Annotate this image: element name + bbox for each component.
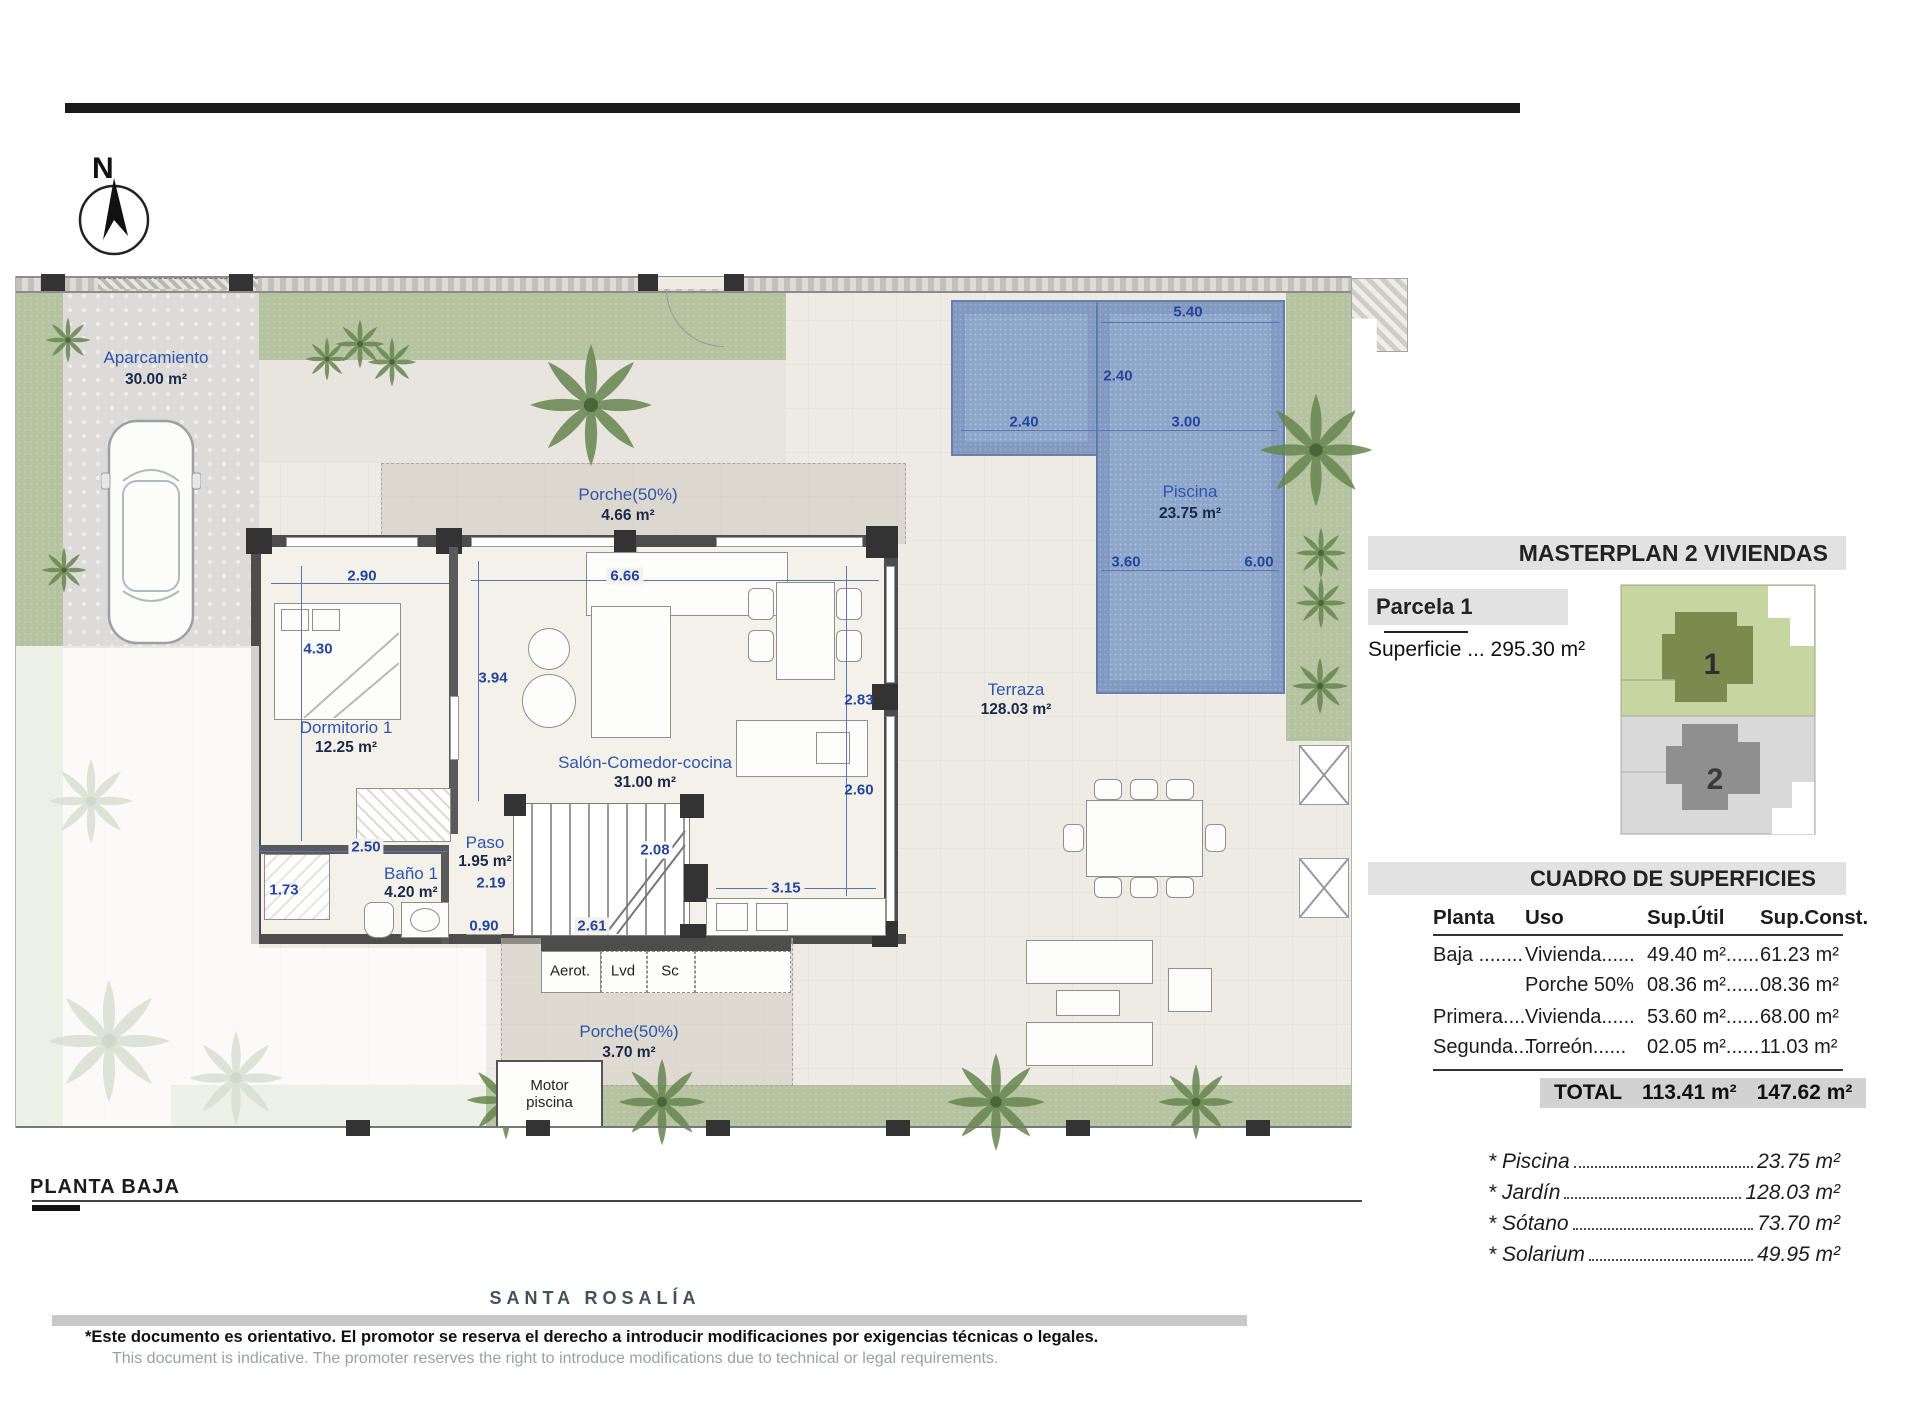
cell: 53.60 m²...... <box>1647 1006 1760 1029</box>
wall-post <box>680 794 704 818</box>
cell: 02.05 m²...... <box>1647 1036 1760 1059</box>
dining-table <box>776 582 835 680</box>
pool-motor-label-2: piscina <box>526 1094 573 1111</box>
cell: Vivienda...... <box>1525 1006 1647 1029</box>
dim-pool-mid: 3.00 <box>1171 414 1200 431</box>
dining-chair <box>836 630 862 662</box>
cell: 08.36 m² <box>1760 974 1843 997</box>
car-icon <box>101 415 201 650</box>
room-name-paso: Paso <box>466 833 505 853</box>
neighbour-fade-overlay <box>259 948 486 1128</box>
total-label: TOTAL <box>1554 1081 1622 1105</box>
dim-pool-arm: 2.40 <box>1009 414 1038 431</box>
pool-motor-box: Motor piscina <box>496 1060 603 1128</box>
fence-post <box>724 274 744 291</box>
kitchen-sink <box>816 732 850 764</box>
cuadro-row: Porche 50% 08.36 m²...... 08.36 m² <box>1433 974 1843 997</box>
kitchen-appliance <box>756 903 788 931</box>
cell: 49.40 m²...... <box>1647 944 1760 967</box>
extras-label: * Solarium <box>1488 1243 1585 1267</box>
room-name-porche-bottom: Porche(50%) <box>579 1022 678 1042</box>
palm-tree-icon <box>526 340 656 470</box>
top-divider-bar <box>65 103 1520 113</box>
pool-dim-line <box>1096 306 1097 686</box>
dim-salon-right-height: 2.83 <box>844 692 873 709</box>
pool-motor-label-1: Motor <box>530 1077 568 1094</box>
dining-chair <box>836 588 862 620</box>
dim-line <box>846 566 847 896</box>
corner-paving <box>1351 278 1408 352</box>
cuadro-title: CUADRO DE SUPERFICIES <box>1368 862 1846 895</box>
dotted-leader <box>1574 1165 1753 1168</box>
utility-label-aerot: Aerot. <box>550 963 590 980</box>
dotted-leader <box>1573 1227 1754 1230</box>
north-compass-icon: N <box>68 148 160 263</box>
extras-value: 23.75 m² <box>1757 1150 1840 1174</box>
dotted-leader <box>1589 1258 1753 1261</box>
utility-label-lvd: Lvd <box>611 963 635 980</box>
outdoor-table <box>1086 800 1203 877</box>
sofa-chaise <box>591 606 671 738</box>
extras-item: * Jardín128.03 m² <box>1488 1181 1840 1205</box>
plan-title-rule <box>32 1200 1362 1202</box>
fence-post <box>638 274 658 291</box>
dim-salon-right-height2: 2.60 <box>844 782 873 799</box>
skylight-box <box>1299 858 1349 918</box>
parcel-bottom-fence <box>16 1126 1351 1128</box>
masterplan-unit-2: 2 <box>1707 763 1724 796</box>
extras-list: * Piscina23.75 m² * Jardín128.03 m² * Só… <box>1488 1150 1840 1274</box>
room-name-terraza: Terraza <box>988 680 1045 700</box>
room-area-piscina: 23.75 m² <box>1159 505 1221 523</box>
room-name-piscina: Piscina <box>1163 482 1218 502</box>
dotted-leader <box>1564 1196 1741 1199</box>
total-sup-util: 113.41 m² <box>1642 1081 1737 1105</box>
cuadro-rule <box>1433 1069 1843 1071</box>
dining-chair <box>748 630 774 662</box>
wardrobe <box>356 788 451 842</box>
dim-pool-bottom-left: 3.60 <box>1111 554 1140 571</box>
room-name-salon: Salón-Comedor-cocina <box>558 753 732 773</box>
dim-pool-bottom-right: 6.00 <box>1244 554 1273 571</box>
bedroom-window <box>286 537 418 547</box>
palm-tree-icon <box>1156 1062 1236 1142</box>
dim-bottom-right: 2.61 <box>574 918 609 935</box>
cuadro-title-bar: CUADRO DE SUPERFICIES <box>1368 862 1846 895</box>
cuadro-header-uso: Uso <box>1525 906 1647 930</box>
extras-value: 49.95 m² <box>1757 1243 1840 1267</box>
room-area-terraza: 128.03 m² <box>981 701 1052 719</box>
wall-post <box>504 794 526 816</box>
dim-stairs: 2.08 <box>637 842 672 859</box>
outdoor-chair <box>1166 779 1194 800</box>
lounge-table <box>1056 990 1120 1016</box>
room-area-paso: 1.95 m² <box>458 853 511 871</box>
bush-icon <box>304 336 350 382</box>
palm-tree-icon <box>944 1050 1048 1154</box>
palm-tree-icon <box>1256 390 1376 510</box>
total-sup-const: 147.62 m² <box>1757 1081 1853 1105</box>
staircase-cut-lines <box>513 803 688 934</box>
extras-item: * Solarium49.95 m² <box>1488 1243 1840 1267</box>
bed-blanket-lines <box>274 603 399 718</box>
palm-tree-icon <box>616 1056 708 1148</box>
fence-post <box>41 274 65 291</box>
skylight-box <box>1299 745 1349 805</box>
outdoor-chair <box>1166 877 1194 898</box>
extras-label: * Piscina <box>1488 1150 1570 1174</box>
extras-label: * Sótano <box>1488 1212 1569 1236</box>
fence-post <box>1066 1120 1090 1136</box>
room-area-salon: 31.00 m² <box>614 774 676 792</box>
utility-cell-empty <box>695 951 791 993</box>
dim-kitchen-width: 3.15 <box>767 880 804 897</box>
bush-icon <box>44 316 92 364</box>
dim-salon-width: 6.66 <box>606 568 643 585</box>
room-name-bano: Baño 1 <box>384 864 438 884</box>
utility-wall <box>541 938 791 951</box>
cell: 11.03 m² <box>1760 1036 1843 1059</box>
cuadro-row: Segunda... Torreón...... 02.05 m²...... … <box>1433 1036 1843 1059</box>
room-name-porche-top: Porche(50%) <box>578 485 677 505</box>
extras-label: * Jardín <box>1488 1181 1560 1205</box>
disclaimer-es: *Este documento es orientativo. El promo… <box>85 1328 1098 1347</box>
cell <box>1433 974 1525 997</box>
bedroom-sliding-door <box>450 696 459 760</box>
cell: Baja ........ <box>1433 944 1525 967</box>
cell: Vivienda...... <box>1525 944 1647 967</box>
masterplan-title-bar: MASTERPLAN 2 VIVIENDAS <box>1368 536 1846 570</box>
lounge-armchair <box>1168 968 1212 1012</box>
bush-icon <box>40 546 88 594</box>
north-label: N <box>92 152 114 185</box>
extras-value: 73.70 m² <box>1757 1212 1840 1236</box>
floor-plan: Aparcamiento 30.00 m² 5.40 2.40 2.40 3.0… <box>15 276 1352 1128</box>
fence-post <box>346 1120 370 1136</box>
parcela-underline <box>1384 631 1468 633</box>
dim-bath-height: 1.73 <box>269 882 298 899</box>
cuadro-row: Primera.... Vivienda...... 53.60 m².....… <box>1433 1006 1843 1029</box>
outdoor-chair <box>1094 779 1122 800</box>
total-bar: TOTAL 113.41 m² 147.62 m² <box>1540 1078 1866 1108</box>
cuadro-table: Planta Uso Sup.Útil Sup.Const. Baja ....… <box>1433 906 1843 1071</box>
cuadro-header-sup-util: Sup.Útil <box>1647 906 1760 930</box>
room-area-dormitorio: 12.25 m² <box>315 739 377 757</box>
cuadro-rule <box>1433 934 1843 936</box>
dim-paso-width: 2.50 <box>348 839 383 856</box>
brand-logo: SANTA ROSALÍA <box>350 1288 840 1309</box>
pedestrian-gate-gap <box>656 277 726 289</box>
extras-value: 128.03 m² <box>1745 1181 1840 1205</box>
toilet <box>364 902 394 938</box>
cuadro-header-sup-const: Sup.Const. <box>1760 906 1843 930</box>
room-area-porche-top: 4.66 m² <box>601 507 654 525</box>
outdoor-chair <box>1205 824 1226 852</box>
dining-chair <box>748 588 774 620</box>
pouf <box>522 674 576 728</box>
bush-icon <box>1290 656 1350 716</box>
cuadro-header-row: Planta Uso Sup.Útil Sup.Const. <box>1433 906 1843 930</box>
wall-post <box>872 684 898 710</box>
room-area-aparcamiento: 30.00 m² <box>125 371 187 389</box>
utility-label-sc: Sc <box>661 963 679 980</box>
outdoor-chair <box>1094 877 1122 898</box>
fence-post <box>1246 1120 1270 1136</box>
disclaimer-en: This document is indicative. The promote… <box>112 1350 998 1368</box>
salon-window <box>471 537 623 547</box>
cell: Primera.... <box>1433 1006 1525 1029</box>
parcela-bar: Parcela 1 <box>1368 589 1568 625</box>
terrace-glazing-upper <box>886 566 895 683</box>
dim-salon-left-height: 3.94 <box>478 670 507 687</box>
wall-post <box>246 528 272 554</box>
superficie-text: Superficie ... 295.30 m² <box>1368 638 1585 662</box>
fence-post <box>229 274 253 291</box>
masterplan-unit-1: 1 <box>1704 648 1721 681</box>
fence-post <box>706 1120 730 1136</box>
cell: Porche 50% <box>1525 974 1647 997</box>
room-name-aparcamiento: Aparcamiento <box>104 348 209 368</box>
fence-post <box>526 1120 550 1136</box>
bush-icon <box>1294 576 1348 630</box>
salon-sliding-door <box>716 537 863 547</box>
cuadro-header-planta: Planta <box>1433 906 1525 930</box>
room-area-bano: 4.20 m² <box>384 884 437 902</box>
bush-icon <box>366 336 418 388</box>
neighbour-fade-overlay <box>16 646 259 1128</box>
cell: 08.36 m²...... <box>1647 974 1760 997</box>
pool-dim-line <box>1101 322 1279 323</box>
masterplan-graphic: 1 2 <box>1620 584 1816 836</box>
sink-basin <box>410 908 440 932</box>
extras-item: * Piscina23.75 m² <box>1488 1150 1840 1174</box>
dim-bedroom-height: 4.30 <box>303 641 332 658</box>
masterplan-title: MASTERPLAN 2 VIVIENDAS <box>1368 536 1846 570</box>
outdoor-chair <box>1130 779 1158 800</box>
outdoor-chair <box>1063 824 1084 852</box>
dim-pool-top: 5.40 <box>1173 304 1202 321</box>
parcela-label: Parcela 1 <box>1376 594 1473 619</box>
room-name-dormitorio: Dormitorio 1 <box>300 718 393 738</box>
dim-bottom-left: 0.90 <box>466 918 501 935</box>
dim-line <box>471 580 879 581</box>
extras-item: * Sótano73.70 m² <box>1488 1212 1840 1236</box>
plan-title: PLANTA BAJA <box>30 1176 180 1199</box>
cuadro-row: Baja ........ Vivienda...... 49.40 m²...… <box>1433 944 1843 967</box>
kitchen-appliance <box>716 903 748 931</box>
plan-sheet: N Aparcamiento 30.00 m² <box>0 0 1920 1406</box>
bush-icon <box>1294 526 1348 580</box>
cell: Torreón...... <box>1525 1036 1647 1059</box>
dim-pool-vertical: 2.40 <box>1103 368 1132 385</box>
pouf <box>528 628 570 670</box>
pool-dim-line <box>961 430 1276 431</box>
cell: Segunda... <box>1433 1036 1525 1059</box>
fence-post <box>886 1120 910 1136</box>
lounge-sofa <box>1026 940 1153 984</box>
wall-post <box>614 530 636 552</box>
wall-post <box>684 864 708 902</box>
cell: 61.23 m² <box>1760 944 1843 967</box>
plan-title-dash <box>32 1205 80 1211</box>
pool-arm <box>951 300 1102 456</box>
footer-bar <box>52 1315 1247 1326</box>
terrace-glazing-lower <box>886 716 895 923</box>
outdoor-chair <box>1130 877 1158 898</box>
wall-post <box>866 526 898 558</box>
dim-bedroom-width: 2.90 <box>347 568 376 585</box>
dim-line <box>301 566 302 841</box>
cell: 68.00 m² <box>1760 1006 1843 1029</box>
dim-paso-height: 2.19 <box>476 875 505 892</box>
